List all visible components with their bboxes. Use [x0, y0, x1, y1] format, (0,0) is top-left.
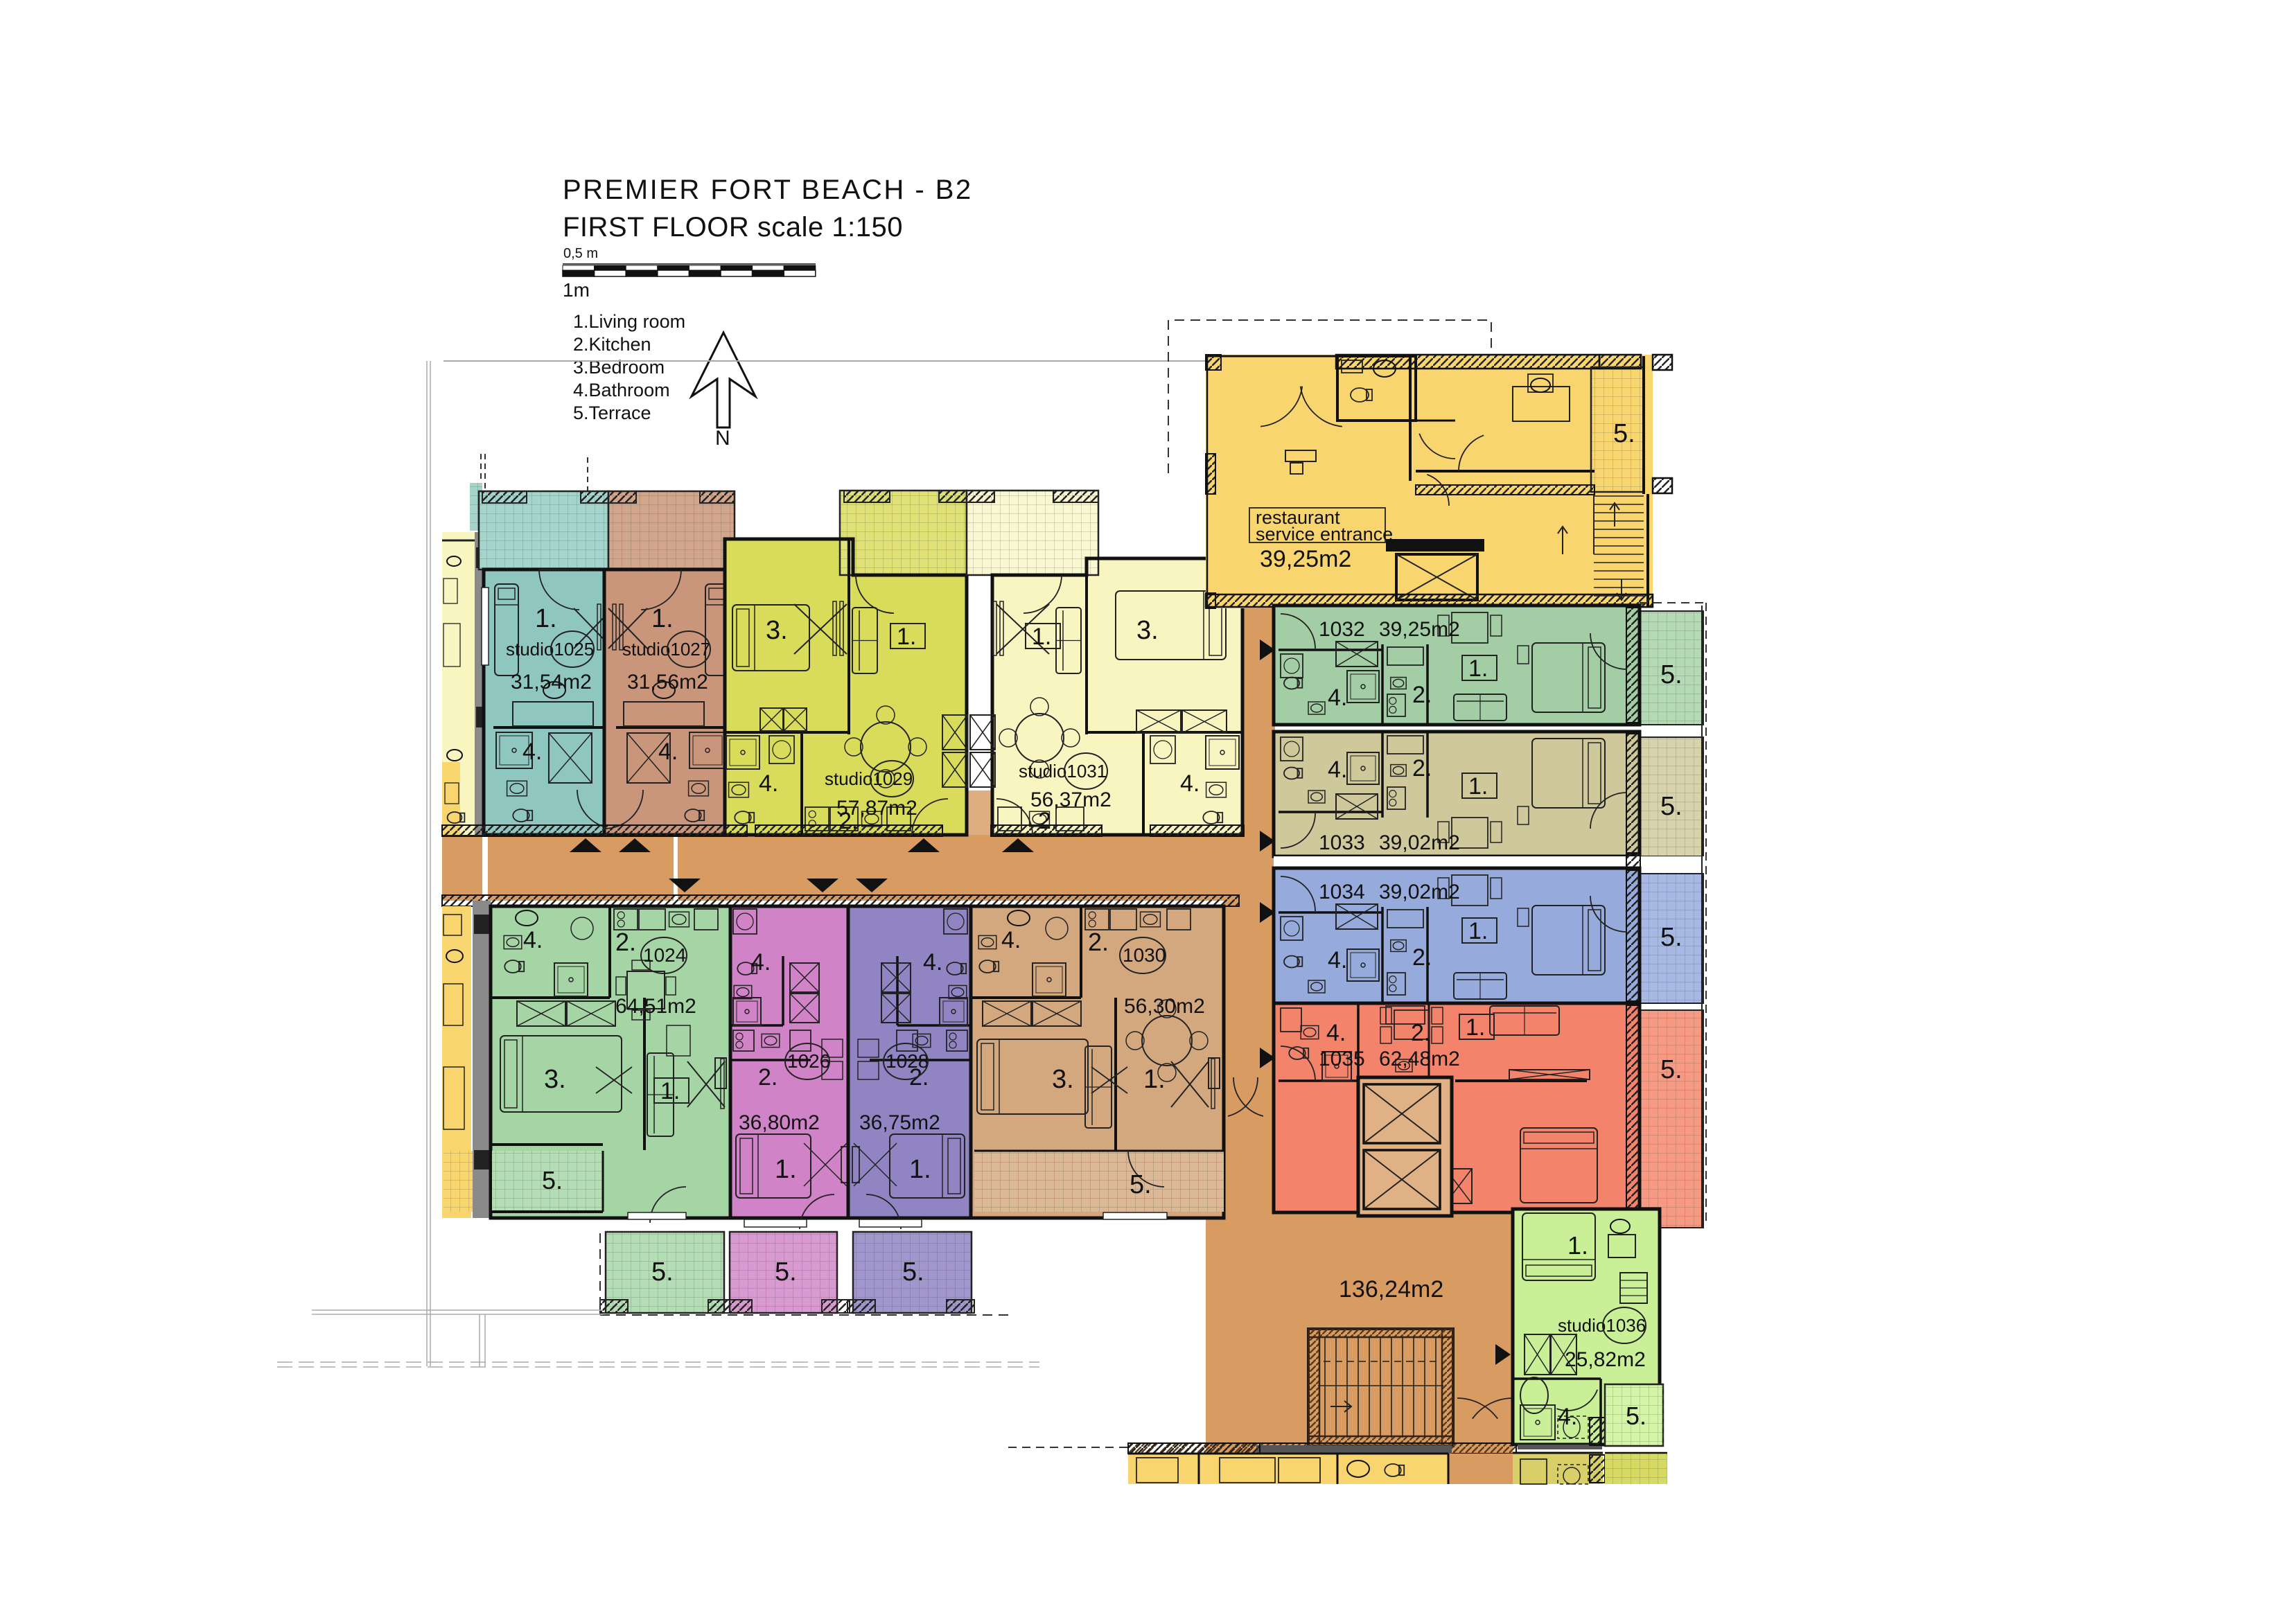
svg-text:studio1031: studio1031 [1019, 761, 1107, 782]
svg-text:2.: 2. [1412, 682, 1432, 708]
svg-text:1.: 1. [909, 1155, 931, 1184]
svg-text:36,75m2: 36,75m2 [859, 1111, 940, 1134]
svg-text:service entrance: service entrance [1256, 524, 1393, 545]
svg-text:4.: 4. [1328, 947, 1347, 973]
svg-text:5.: 5. [1660, 923, 1683, 952]
svg-text:studio1025: studio1025 [506, 639, 594, 660]
svg-text:31,56m2: 31,56m2 [627, 671, 708, 694]
svg-text:4.: 4. [658, 739, 678, 765]
svg-text:1.: 1. [651, 604, 674, 633]
svg-text:4.: 4. [1180, 770, 1200, 797]
svg-text:1.Living room: 1.Living room [573, 311, 685, 332]
svg-text:1026: 1026 [787, 1050, 830, 1072]
svg-text:1035: 1035 [1319, 1048, 1365, 1070]
svg-text:4.: 4. [751, 949, 771, 976]
svg-text:5.: 5. [1660, 792, 1683, 821]
svg-text:5.: 5. [1660, 1055, 1683, 1084]
svg-text:4.: 4. [1328, 757, 1347, 783]
svg-text:1.: 1. [1466, 1014, 1485, 1041]
svg-text:1032: 1032 [1319, 618, 1365, 641]
svg-text:1.: 1. [775, 1155, 797, 1184]
svg-text:5.: 5. [902, 1257, 924, 1287]
svg-text:5.Terrace: 5.Terrace [573, 403, 651, 423]
svg-text:62,48m2: 62,48m2 [1379, 1048, 1460, 1070]
svg-text:39,25m2: 39,25m2 [1379, 618, 1460, 641]
svg-text:2.Kitchen: 2.Kitchen [573, 334, 651, 355]
svg-text:1.: 1. [1567, 1231, 1588, 1260]
svg-text:39,25m2: 39,25m2 [1260, 546, 1351, 572]
svg-text:1.: 1. [1143, 1065, 1166, 1094]
svg-text:PREMIER FORT BEACH - B2: PREMIER FORT BEACH - B2 [563, 175, 973, 205]
svg-text:1024: 1024 [643, 944, 686, 966]
svg-text:3.: 3. [766, 616, 788, 645]
svg-text:64,51m2: 64,51m2 [615, 995, 696, 1018]
svg-text:5.: 5. [542, 1166, 563, 1194]
svg-text:4.Bathroom: 4.Bathroom [573, 380, 670, 400]
svg-text:1.: 1. [535, 604, 557, 633]
svg-text:studio1027: studio1027 [622, 639, 710, 660]
svg-text:2.: 2. [758, 1064, 777, 1091]
svg-text:5.: 5. [1613, 419, 1635, 448]
svg-text:5.: 5. [1660, 660, 1683, 689]
svg-text:0,5 m: 0,5 m [563, 246, 598, 261]
svg-text:1033: 1033 [1319, 831, 1365, 854]
svg-text:2.: 2. [1088, 928, 1109, 956]
svg-text:1.: 1. [1468, 773, 1488, 800]
svg-text:39,02m2: 39,02m2 [1379, 831, 1460, 854]
svg-text:31,54m2: 31,54m2 [511, 671, 592, 694]
svg-text:3.Bedroom: 3.Bedroom [573, 357, 665, 378]
svg-text:4.: 4. [1326, 1020, 1346, 1046]
svg-text:5.: 5. [775, 1257, 797, 1287]
svg-text:5.: 5. [1626, 1402, 1646, 1430]
svg-text:2.: 2. [1412, 755, 1432, 782]
svg-text:1030: 1030 [1123, 944, 1166, 966]
svg-text:studio1036: studio1036 [1558, 1315, 1646, 1336]
svg-text:4.: 4. [923, 949, 942, 976]
svg-text:4.: 4. [1558, 1404, 1577, 1430]
svg-text:N: N [715, 427, 730, 450]
svg-text:1.: 1. [1468, 655, 1488, 682]
svg-text:1028: 1028 [886, 1050, 929, 1072]
svg-text:studio1029: studio1029 [825, 768, 913, 789]
svg-text:4.: 4. [523, 927, 543, 953]
svg-text:2.: 2. [615, 928, 636, 956]
svg-text:5.: 5. [1130, 1170, 1152, 1199]
svg-text:1.: 1. [660, 1078, 680, 1104]
svg-text:3.: 3. [544, 1065, 566, 1094]
svg-text:2.: 2. [1411, 1020, 1430, 1046]
svg-text:1034: 1034 [1319, 881, 1365, 903]
svg-text:2.: 2. [1412, 944, 1432, 971]
svg-text:3.: 3. [1136, 616, 1159, 645]
svg-text:4.: 4. [759, 770, 778, 797]
svg-text:FIRST FLOOR scale 1:150: FIRST FLOOR scale 1:150 [563, 212, 903, 242]
svg-text:1.: 1. [897, 624, 916, 650]
svg-text:1m: 1m [563, 279, 590, 301]
svg-text:5.: 5. [651, 1257, 674, 1287]
svg-text:4.: 4. [1328, 685, 1347, 711]
svg-text:3.: 3. [1052, 1065, 1074, 1094]
svg-text:56,30m2: 56,30m2 [1124, 995, 1205, 1018]
svg-text:39,02m2: 39,02m2 [1379, 881, 1460, 903]
svg-text:4.: 4. [1001, 927, 1021, 953]
svg-text:136,24m2: 136,24m2 [1339, 1276, 1443, 1303]
svg-text:25,82m2: 25,82m2 [1565, 1348, 1646, 1371]
svg-text:36,80m2: 36,80m2 [739, 1111, 820, 1134]
svg-text:1.: 1. [1468, 918, 1488, 944]
svg-text:1.: 1. [1032, 624, 1051, 650]
svg-text:4.: 4. [522, 739, 542, 765]
